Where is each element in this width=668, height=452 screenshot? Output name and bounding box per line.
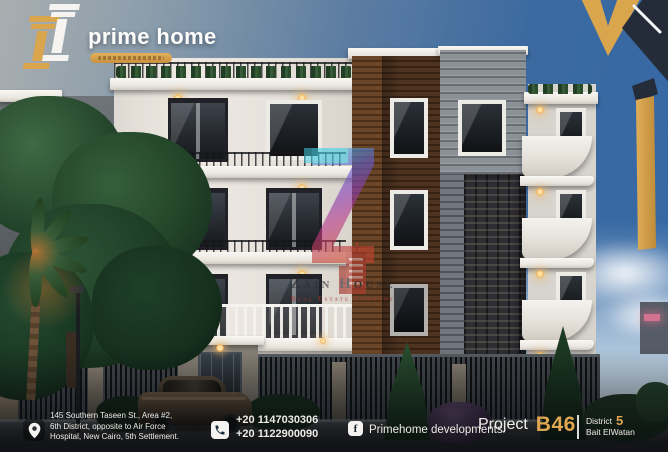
corner-decoration (548, 0, 668, 270)
decor (350, 246, 352, 252)
primehome-logo: prime home (26, 4, 266, 72)
decor (31, 24, 56, 29)
phone-numbers: +20 1147030306 +20 1122900090 (236, 414, 318, 441)
balcony-light (536, 188, 544, 196)
decor: District 5 (586, 414, 635, 427)
decor (312, 148, 374, 263)
district-number: 5 (616, 414, 623, 427)
decor (304, 148, 374, 263)
decor (349, 270, 363, 273)
watermark-company-tagline: Real Estate Company (284, 295, 402, 303)
address: 145 Southern Taseen St., Area #2, 6th Di… (50, 411, 210, 443)
phone-icon-box (211, 421, 229, 439)
balcony-light (536, 106, 544, 114)
phone-number: +20 1122900090 (236, 428, 318, 442)
brand-tagline-pill (90, 53, 172, 63)
facebook-icon: f (348, 421, 363, 436)
decor (32, 426, 37, 431)
phone-icon (214, 424, 226, 436)
primehome-logo-icon (26, 4, 90, 70)
project-code: B46 (536, 414, 576, 436)
decor (349, 264, 363, 267)
address-line: 145 Southern Taseen St., Area #2, (50, 411, 210, 422)
decor (49, 4, 80, 10)
district-area: Bait ElWatan (586, 427, 635, 437)
balcony-light (536, 270, 544, 278)
palm-frond (29, 249, 42, 307)
decor (304, 148, 348, 163)
address-pin (23, 419, 45, 441)
wall-light (320, 338, 326, 344)
phone-number: +20 1147030306 (236, 414, 318, 428)
gold-bar (636, 96, 656, 250)
address-line: 6th District, opposite to Air Force (50, 422, 210, 433)
address-line: Hospital, New Cairo, 5th Settlement. (50, 432, 210, 443)
decor (216, 426, 225, 435)
zain-house-logo-icon (284, 146, 402, 294)
distant-sign (644, 314, 660, 321)
brand-tagline-text (98, 56, 164, 60)
watermark-zain-house: Zain House Real Estate Company (284, 146, 402, 316)
roof-slab (110, 78, 358, 90)
distant-building (640, 302, 668, 354)
window (458, 100, 506, 156)
decor (23, 63, 50, 69)
brand-name: prime home (88, 24, 217, 50)
district-block: District 5 Bait ElWatan (586, 414, 635, 437)
decor (42, 55, 69, 61)
decor (51, 12, 76, 17)
bottom-strip (0, 445, 668, 452)
decor (349, 258, 363, 261)
location-pin-icon (28, 422, 41, 439)
watermark-company-name: Zain House (284, 276, 402, 293)
decor (356, 242, 358, 252)
real-estate-poster: Zain House Real Estate Company (0, 0, 668, 452)
facebook-letter: f (354, 423, 358, 435)
project-divider (577, 415, 579, 439)
project-label: Project (478, 414, 528, 436)
district-label: District (586, 415, 612, 427)
project-block: Project B46 (478, 414, 576, 436)
